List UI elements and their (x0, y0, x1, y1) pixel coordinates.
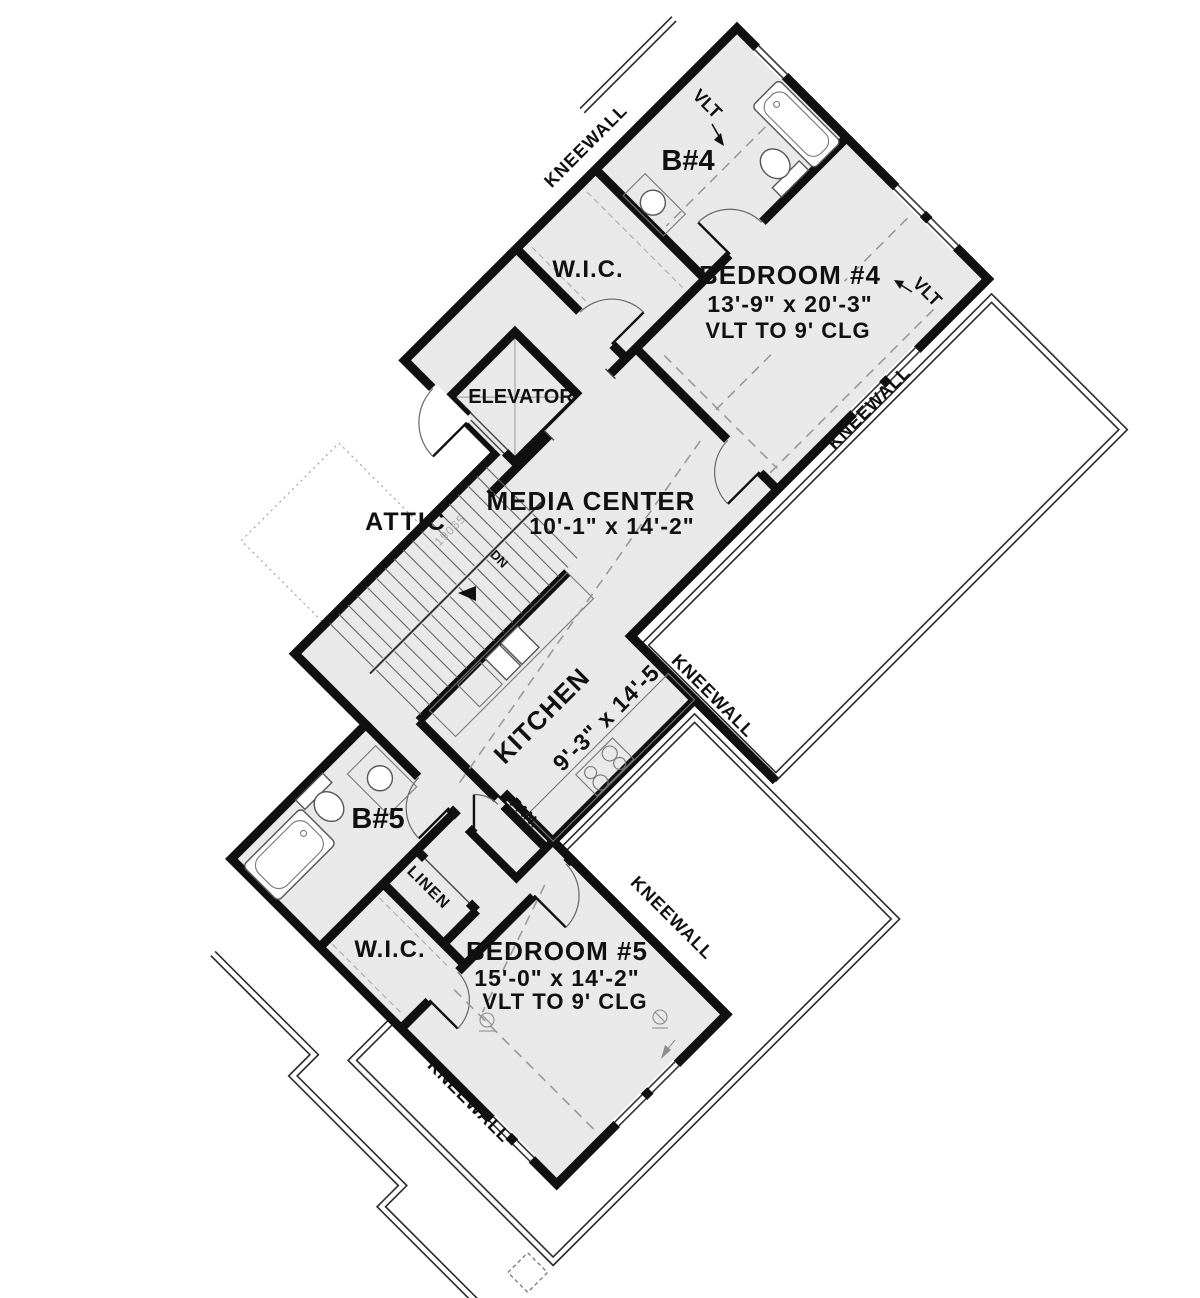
floor-plan-page: KNEEWALL KNEEWALL KNEEWALL KNEEWALL KNEE… (0, 0, 1200, 1298)
bedroom4-dims: 13'-9" x 20'-3" (707, 291, 872, 317)
bath4-label: B#4 (661, 145, 714, 177)
bedroom4-title: BEDROOM #4 (699, 260, 881, 290)
bedroom5-ceiling: VLT TO 9' CLG (482, 989, 647, 1014)
chimney-outline (508, 1253, 548, 1293)
plan-geometry (0, 0, 1200, 1298)
bedroom5-title: BEDROOM #5 (466, 936, 648, 966)
bedroom5-dims: 15'-0" x 14'-2" (474, 965, 639, 991)
media-center-title: MEDIA CENTER (487, 486, 696, 516)
wic4-label: W.I.C. (552, 256, 623, 283)
bath5-label: B#5 (351, 803, 404, 835)
attic-label: ATTIC (365, 508, 447, 536)
wic5-label: W.I.C. (354, 936, 425, 963)
elevator-label: ELEVATOR (468, 386, 574, 408)
bedroom4-ceiling: VLT TO 9' CLG (705, 318, 870, 343)
floor-plan-drawing: KNEEWALL KNEEWALL KNEEWALL KNEEWALL KNEE… (0, 0, 1200, 1298)
media-center-dims: 10'-1" x 14'-2" (529, 513, 694, 539)
